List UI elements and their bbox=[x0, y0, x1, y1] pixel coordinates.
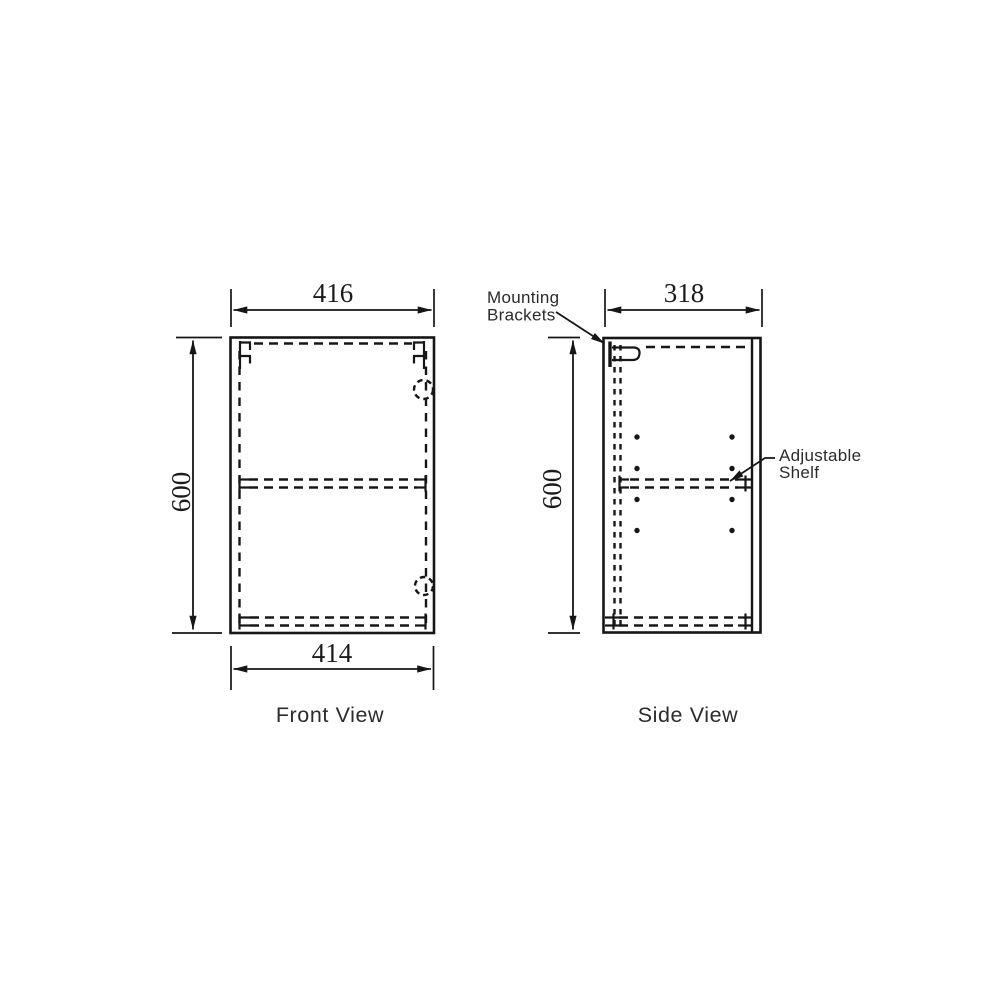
pin-hole bbox=[634, 497, 639, 502]
front-shelf-right-cap bbox=[417, 476, 426, 492]
front-height-dimension: 600 bbox=[166, 338, 222, 634]
mounting-brackets-annotation: Mounting Brackets bbox=[487, 288, 605, 344]
front-bottom-right-cap bbox=[415, 614, 426, 630]
pin-hole bbox=[729, 434, 734, 439]
front-left-bracket-glyph bbox=[240, 341, 251, 369]
front-bottom-hinge-circle bbox=[415, 577, 433, 595]
mounting-brackets-label-line2: Brackets bbox=[487, 306, 556, 325]
front-right-bracket-glyph bbox=[413, 341, 424, 369]
side-height-dimension: 600 bbox=[537, 338, 580, 634]
front-bottom-panel-dashed bbox=[250, 618, 415, 626]
side-bottom-left-cap bbox=[605, 614, 619, 630]
front-shelf-dashed bbox=[249, 480, 417, 488]
pin-hole bbox=[729, 528, 734, 533]
front-top-width-dimension: 416 bbox=[231, 278, 434, 327]
side-shelf-pin-holes bbox=[634, 434, 734, 533]
side-view-caption: Side View bbox=[638, 703, 739, 727]
front-bottom-left-cap bbox=[240, 614, 251, 630]
technical-drawing-canvas: 416 414 600 Front View bbox=[0, 0, 1000, 1000]
side-depth-dimension: 318 bbox=[605, 278, 762, 327]
front-bottom-width-dimension: 414 bbox=[231, 638, 434, 690]
front-top-hinge-circle bbox=[414, 380, 433, 399]
pin-hole bbox=[634, 434, 639, 439]
front-height-value: 600 bbox=[166, 472, 196, 513]
adjustable-shelf-label-line2: Shelf bbox=[779, 463, 819, 482]
front-view: 416 414 600 Front View bbox=[166, 278, 434, 727]
pin-hole bbox=[729, 466, 734, 471]
side-bottom-panel-dashed bbox=[619, 618, 738, 626]
pin-hole bbox=[634, 528, 639, 533]
side-cabinet-outline bbox=[604, 338, 761, 633]
side-shelf-right-cap bbox=[737, 476, 752, 492]
front-shelf-left-cap bbox=[240, 476, 250, 492]
side-height-value: 600 bbox=[537, 469, 567, 510]
side-view: 318 600 Mounting Brackets Adjustable She… bbox=[487, 278, 861, 727]
pin-hole bbox=[634, 466, 639, 471]
front-view-caption: Front View bbox=[276, 703, 384, 727]
front-cabinet-outline bbox=[231, 338, 435, 634]
side-shelf-dashed bbox=[630, 480, 738, 488]
adjustable-shelf-annotation: Adjustable Shelf bbox=[730, 446, 861, 482]
mounting-brackets-label-line1: Mounting bbox=[487, 288, 559, 307]
mounting-brackets-leader-line bbox=[556, 312, 605, 344]
side-bracket-body bbox=[612, 348, 640, 361]
pin-hole bbox=[729, 497, 734, 502]
side-depth-value: 318 bbox=[664, 278, 705, 308]
front-top-width-value: 416 bbox=[313, 278, 354, 308]
side-bottom-right-cap bbox=[738, 614, 752, 630]
front-bottom-width-value: 414 bbox=[312, 638, 353, 668]
